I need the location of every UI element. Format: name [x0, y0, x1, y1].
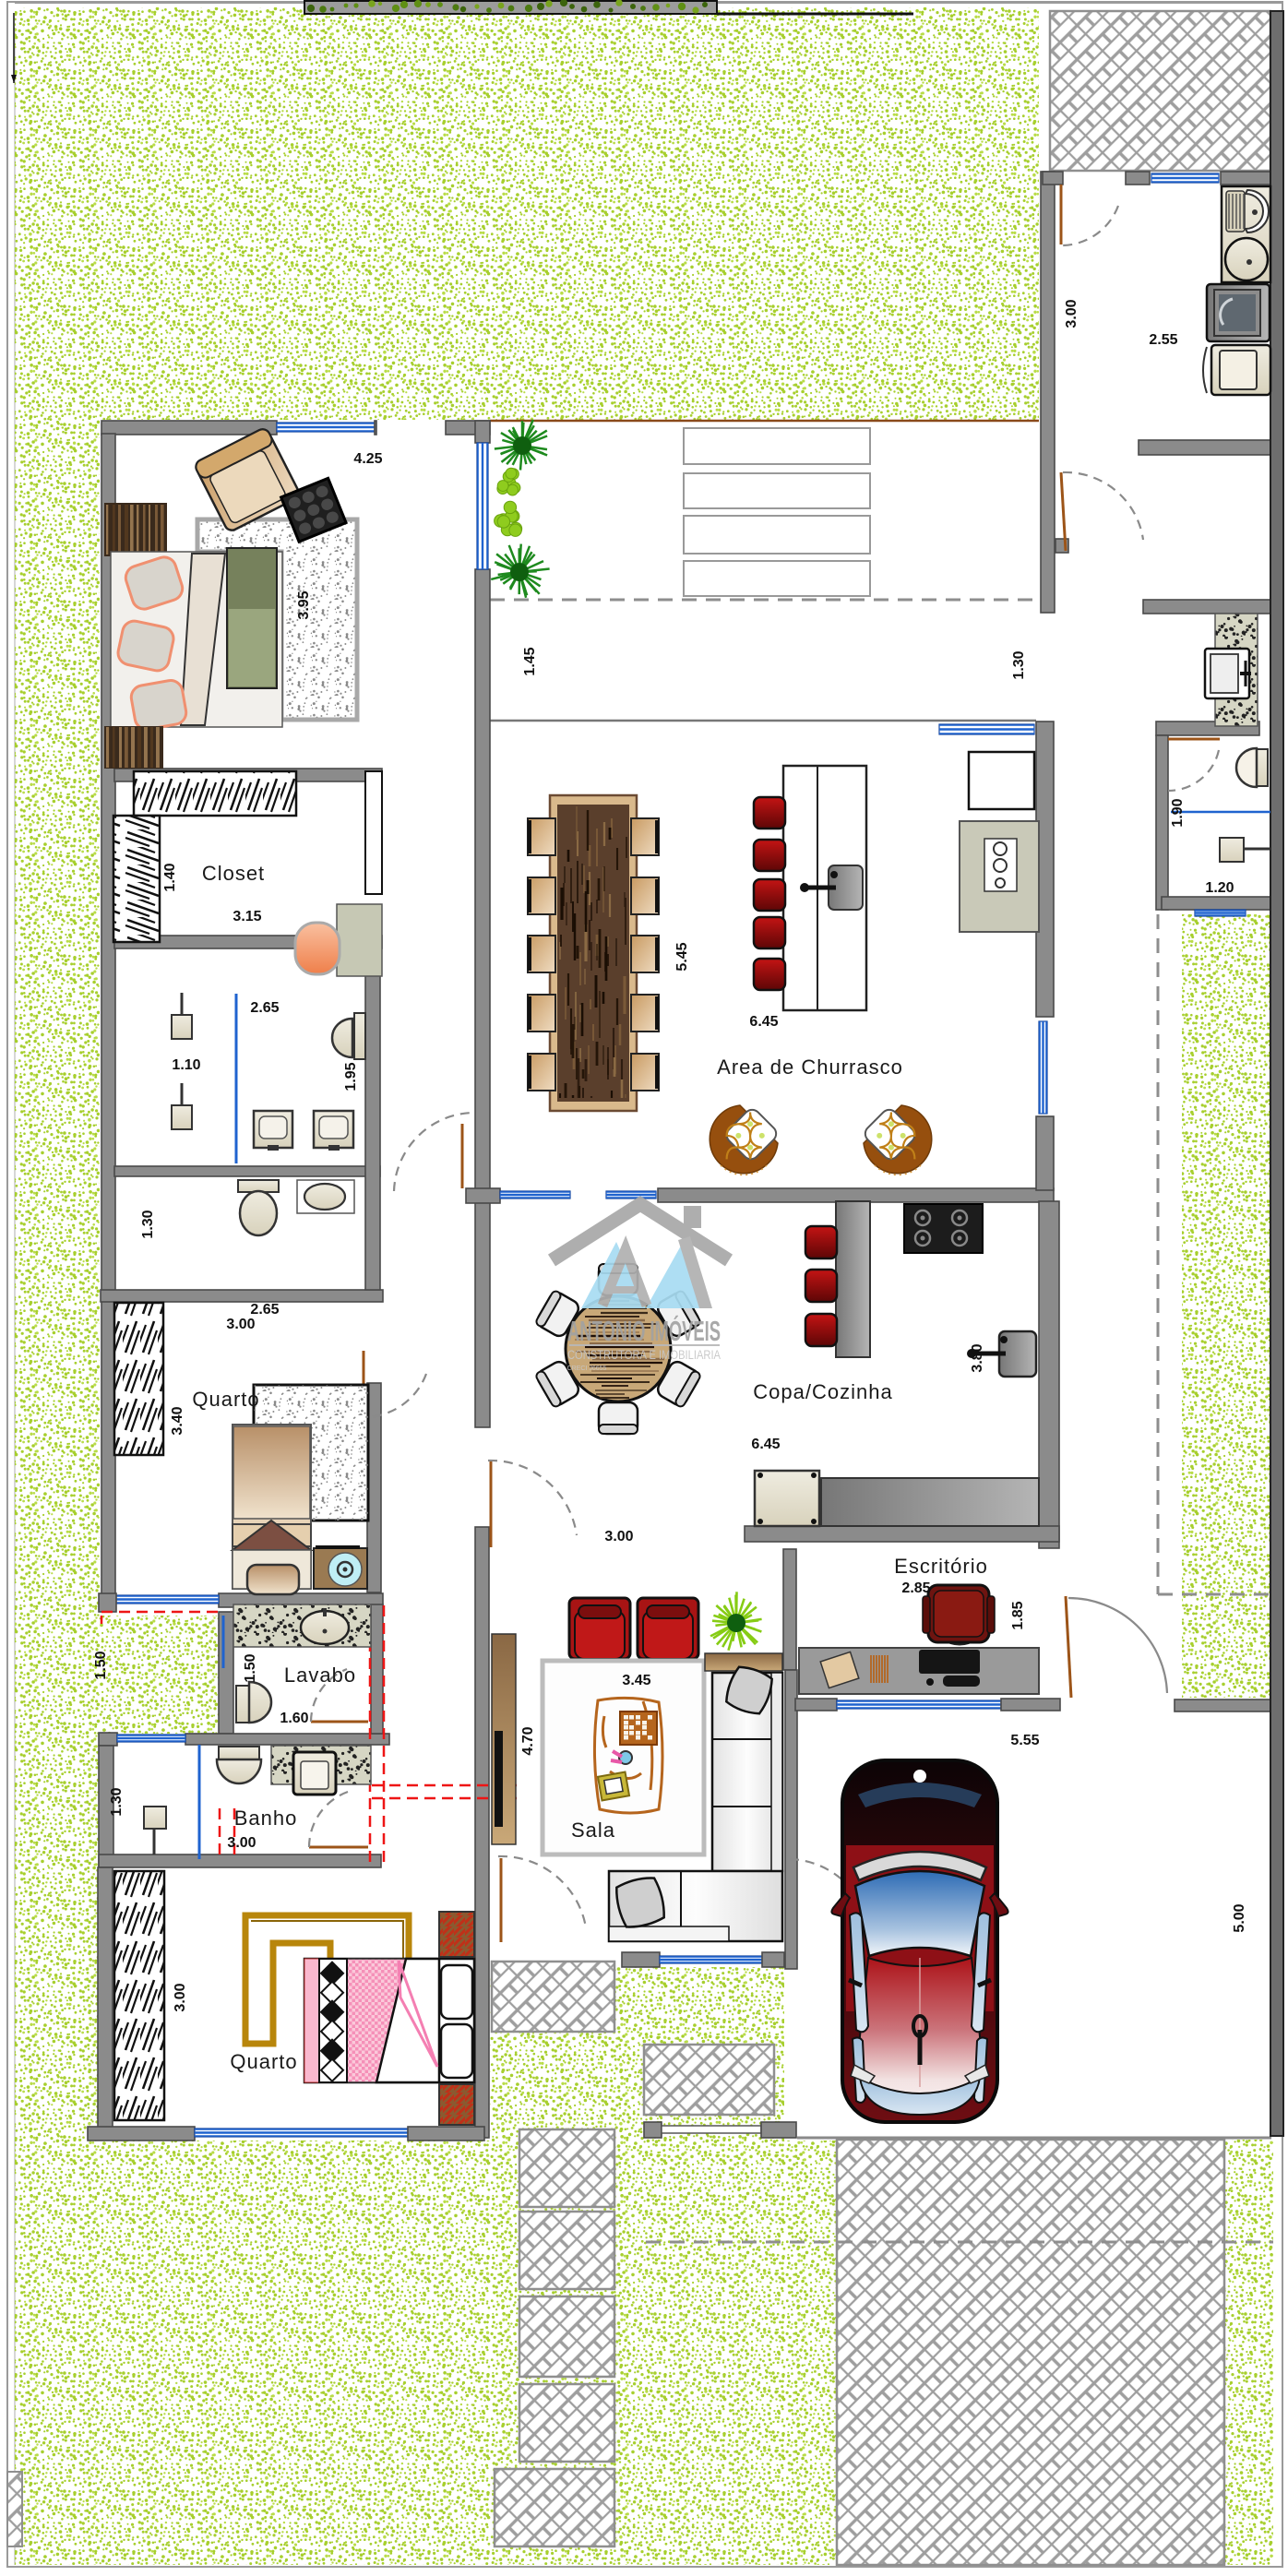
svg-text:ANTONIO IMÓVEIS: ANTONIO IMÓVEIS: [567, 1314, 721, 1347]
svg-text:3.40: 3.40: [170, 1406, 185, 1435]
svg-text:3.80: 3.80: [970, 1343, 985, 1372]
svg-text:3.00: 3.00: [1064, 299, 1079, 328]
svg-text:2.65: 2.65: [250, 1302, 279, 1318]
svg-text:4.70: 4.70: [520, 1726, 536, 1755]
svg-text:Quarto: Quarto: [230, 2050, 297, 2073]
svg-text:6.45: 6.45: [749, 1014, 778, 1030]
svg-text:5.00: 5.00: [1232, 1903, 1247, 1932]
svg-text:3.15: 3.15: [233, 909, 261, 924]
svg-text:1.45: 1.45: [522, 647, 538, 675]
svg-text:Closet: Closet: [202, 862, 265, 885]
svg-text:3.00: 3.00: [227, 1835, 256, 1851]
svg-text:1.50: 1.50: [93, 1651, 109, 1679]
svg-text:1.10: 1.10: [172, 1057, 200, 1073]
svg-text:4.25: 4.25: [353, 451, 382, 467]
svg-text:1.20: 1.20: [1205, 880, 1234, 896]
svg-text:Banho: Banho: [234, 1807, 298, 1830]
svg-text:Copa/Cozinha: Copa/Cozinha: [753, 1380, 892, 1403]
svg-text:CRECI J6655: CRECI J6655: [567, 1366, 607, 1372]
svg-text:Area de Churrasco: Area de Churrasco: [717, 1055, 903, 1079]
svg-text:3.00: 3.00: [173, 1983, 188, 2011]
svg-text:5.45: 5.45: [674, 942, 690, 971]
svg-text:CONSTRUTORA E IMOBILIARIA: CONSTRUTORA E IMOBILIARIA: [567, 1348, 721, 1362]
svg-text:3.45: 3.45: [622, 1673, 650, 1688]
svg-text:Lavabo: Lavabo: [284, 1664, 356, 1687]
svg-text:2.65: 2.65: [250, 1000, 279, 1016]
svg-text:3.95: 3.95: [296, 590, 312, 619]
svg-text:1.60: 1.60: [280, 1711, 308, 1726]
svg-text:1.85: 1.85: [1010, 1601, 1026, 1629]
svg-text:2.85: 2.85: [901, 1580, 930, 1596]
svg-text:1.90: 1.90: [1170, 798, 1186, 827]
svg-text:5.55: 5.55: [1010, 1733, 1039, 1748]
svg-text:1.50: 1.50: [243, 1653, 258, 1682]
svg-text:1.40: 1.40: [162, 863, 178, 891]
svg-text:1.30: 1.30: [140, 1210, 156, 1238]
svg-text:6.45: 6.45: [751, 1437, 780, 1452]
svg-text:Sala: Sala: [571, 1819, 615, 1842]
svg-text:3.00: 3.00: [226, 1317, 255, 1332]
svg-text:Escritório: Escritório: [894, 1555, 988, 1578]
svg-text:2.55: 2.55: [1149, 332, 1177, 348]
svg-text:1.30: 1.30: [109, 1787, 125, 1816]
svg-text:3.00: 3.00: [604, 1529, 633, 1544]
svg-text:1.95: 1.95: [343, 1062, 359, 1091]
svg-text:1.30: 1.30: [1011, 650, 1027, 679]
svg-text:Quarto: Quarto: [192, 1388, 259, 1411]
